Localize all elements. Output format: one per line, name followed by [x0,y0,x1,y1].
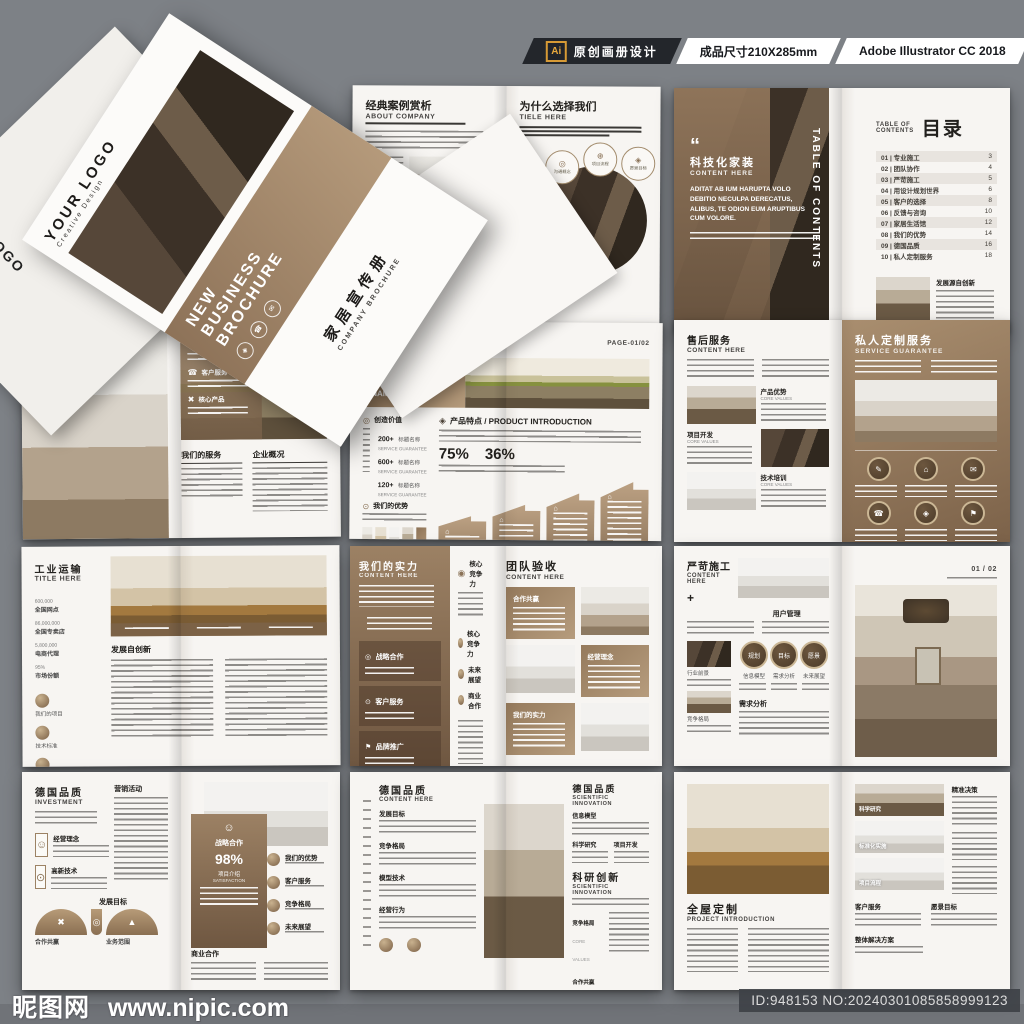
overlay-subtitle: CONTENT HERE [690,170,810,177]
text-lines [955,485,997,497]
left-col: 德国品质 CONTENT HERE 发展目标 竞争格局 模型技术 经营行为 [379,782,476,980]
person-icon: ☺ [197,822,261,834]
page-toc: TABLE OF CONTENTS 目录 01 | 专业施工3 02 | 团队协… [829,88,1010,332]
stair-hall-photo: 项目流程 [855,858,944,890]
dot-circle-icon: ⊙ [362,501,369,510]
section-head: 需求分析 [739,699,829,709]
text-lines [513,607,565,633]
kitchen-photo [581,703,650,751]
big-title: 科研创新 [572,869,649,884]
person-icon-box: ☺ [35,833,48,857]
pagination: 01 / 02 [855,558,997,581]
decision-col: 精准决策 [952,784,997,894]
text-lines [53,845,109,857]
interior-photo [687,472,756,510]
bigdot-icon: ◉ [458,568,466,579]
toc-heading: TABLE OF CONTENTS 目录 [876,114,997,141]
toc-item: 08 | 我们的优势14 [876,228,997,239]
row-label: 竞争格局 CORE VALUES [572,912,603,966]
circles-row: 规划 目标 愿景 [739,641,829,669]
watermark: 昵图网 www.nipic.com [12,988,289,1024]
section-subtitle: SCIENTIFIC INNOVATION [572,795,649,807]
intro-lines [855,360,997,374]
bottom-heads: 客户服务 愿景目标 [855,901,997,929]
text-lines [365,757,414,766]
page-showcase: 01 / 02 [842,546,1010,766]
strength-panel: 我们的实力 CONTENT HERE ◎ 战略合作 ⊙ 客户服务 ⚑ 品牌推广 [350,546,450,766]
section-heading: 严苛施工 CONTENT HERE + [687,558,738,605]
left-rail: 工业运输 TITLE HERE 600,000全国网点 86,000,000全国… [34,556,101,766]
side-item: 核心竞争力 [458,628,486,658]
bottom-lines [191,962,328,980]
text-lines [553,512,587,541]
wardrobe-photo: 科学研究 [855,784,944,816]
page-number: PAGE-01/02 [607,340,649,347]
coin-icon [36,758,50,767]
text-lines [359,585,434,607]
section-title: 德国品质 [572,782,649,795]
strength-box: ◎ 战略合作 [359,641,441,681]
plus-mark: + [687,591,738,605]
toc-en-label: TABLE OF CONTENTS [876,122,914,134]
mini-col: 项目开发 [614,840,649,863]
tick-rail [363,800,371,950]
section-head: 发展自创新 [111,643,327,655]
team-bubble: 合作共赢 [506,587,575,639]
text-lines [125,627,169,632]
text-lines [365,712,414,721]
house-icon: ⌂ [924,465,929,474]
text-lines [739,683,766,693]
interior-photo [687,691,731,713]
overlay-text-block: “ 科技化家装 CONTENT HERE ADITAT AB IUM HARUP… [690,140,810,241]
stock-preview-canvas: { "banner":{"ai_badge":"Ai","label_desig… [0,0,1024,1024]
page-innovation: 德国品质 CONTENT HERE 发展目标 竞争格局 模型技术 经营行为 德国… [350,772,662,990]
section-subtitle: SERVICE GUARANTEE [855,348,997,355]
col-a: 德国品质 INVESTMENT ☺ 经营理念 ⊙ 高新技术 [35,784,104,889]
spec-design-label: 原创画册设计 [574,43,658,60]
text-lines [762,621,829,635]
thumb: 新能源 [375,527,386,541]
text-lines [936,290,994,324]
thumb-stack: 科学研究 标准化实施 项目流程 [855,784,944,894]
spec-size-tag: 成品尺寸210X285mm [676,38,841,64]
goal-circle: 目标 [770,641,798,669]
text-lines [365,667,414,676]
circles-col: 规划 目标 愿景 信息模型 需求分析 未来展望 需求分析 [739,641,829,737]
target-icon: ◎ [365,654,371,661]
icon-list: 我们的项目 技术标准 产品优势 [35,693,101,766]
timeline-dot: ☎ [867,501,891,525]
text-lines [855,913,921,929]
house-bar: ⌂ [492,503,541,541]
interior-photo [687,386,756,424]
advantage-text: 未来展望 [285,921,328,936]
side-title: 精准决策 [952,784,997,794]
living-room-photo [581,587,650,635]
spread-contents: “ 科技化家装 CONTENT HERE ADITAT AB IUM HARUP… [674,88,1010,332]
text-lines [362,513,426,523]
plan-circle: 规划 [740,641,768,669]
process-layout: 科学研究 标准化实施 项目流程 精准决策 [855,784,997,894]
solution-block: 整体解决方案 [855,934,923,956]
head-row: 严苛施工 CONTENT HERE + [687,558,829,605]
sofa-photo [738,558,829,598]
circle-lines [739,683,829,693]
page-strength: 我们的实力 CONTENT HERE ◎ 战略合作 ⊙ 客户服务 ⚑ 品牌推广 … [350,546,493,766]
grid-text-cell: 技术培训CORE VALUES [761,472,830,510]
square-item: ☺ 经营理念 [35,833,104,857]
stat: 120+ 标题名称SERVICE GUARANTEE [378,474,427,497]
body-columns [111,658,327,737]
industry-layout: 工业运输 TITLE HERE 600,000全国网点 86,000,000全国… [34,555,327,767]
thumbs-row: 生物科技 新能源 房地产 信息科技 医疗 [362,527,426,541]
timeline-dot: ⚑ [961,501,985,525]
mail-icon: ✉ [260,297,284,321]
panel-title: 我们的实力 [359,558,441,573]
strength-box: ⚑ 品牌推广 [359,731,441,766]
text-lines [367,617,432,633]
page-whole-house: 全屋定制 PROJECT INTRODUCTION [674,772,842,990]
text-lines [739,711,829,737]
text-lines [690,232,820,241]
spec-design-tag: Ai 原创画册设计 [522,38,682,64]
side-item: 未来展望 [458,664,486,684]
phone-icon: ☎ [874,509,884,518]
text-lines [499,524,533,541]
text-lines [607,501,641,541]
text-lines [771,683,798,693]
advantage-item: 我们的优势 [267,852,328,867]
plus-icon: ⊕ [597,152,604,160]
interior-photo [761,429,830,467]
section-subtitle: CONTENT HERE [687,347,829,354]
inv-columns: 德国品质 INVESTMENT ☺ 经营理念 ⊙ 高新技术 营销活动 [35,784,168,889]
image-id-badge: ID:948153 NO:20240301085858999123 [739,989,1020,1012]
text-lines [285,885,324,890]
advantage-item: 客户服务 [267,875,328,890]
feature-badge: ◈愿景目标 [621,147,655,181]
mosaic-grid: 产品优势CORE VALUES 项目开发CORE VALUES 技术培训CORE… [687,386,829,510]
thumb-photo [362,527,373,541]
page-process: 科学研究 标准化实施 项目流程 精准决策 客户服务 愿景目标 整体解决方案 [842,772,1010,990]
intro-lines [687,359,829,379]
toc-item: 05 | 客户的选择8 [876,195,997,206]
thumb-photo [376,527,387,541]
pencil-icon: ✎ [875,465,882,474]
feature-title: 发展源自创新 [936,277,997,287]
section-title: 售后服务 [687,332,829,347]
page-team: 团队验收 CONTENT HERE 合作共赢 经营理念 我们的实力 [493,546,662,766]
page-investment: 德国品质 INVESTMENT ☺ 经营理念 ⊙ 高新技术 营销活动 发展目标 … [22,772,181,990]
team-grid: 合作共赢 经营理念 我们的实力 [506,587,649,755]
text-lines [748,928,829,972]
text-lines [687,446,752,466]
spread-after-sales: 售后服务 CONTENT HERE 产品优势CORE VALUES 项目开发CO… [674,320,1010,542]
wall-art-shape [915,647,942,685]
stat: 95%市场份额 [35,664,101,679]
text-lines [225,658,327,737]
watermark-site-url: www.nipic.com [108,994,289,1022]
coin-icon [35,726,49,740]
house-bar: ⌂ [600,480,649,541]
toc-item: 04 | 用设计规划世界6 [876,184,997,195]
divider [519,126,641,129]
body-columns [687,928,829,972]
dot-circle-icon: ⊙ [365,699,371,706]
bottom-rows: 竞争格局 CORE VALUES 合作共赢 OUR MISSION 竞争格局 C… [572,912,649,990]
section-title: 团队验收 [506,558,649,574]
toc-item: 01 | 专业施工3 [876,151,997,162]
coin-icon [379,938,393,952]
house-bar: ⌂ [438,515,487,542]
inn-layout: 德国品质 CONTENT HERE 发展目标 竞争格局 模型技术 经营行为 德国… [363,782,649,980]
timeline-lines [855,529,997,541]
text-lines [687,928,738,972]
advantage-text: 客户服务 [285,875,328,890]
coin-icon [458,669,465,679]
spec-banner: Ai 原创画册设计 成品尺寸210X285mm Adobe Illustrato… [522,38,1024,64]
toc-item: 03 | 严苛施工5 [876,173,997,184]
text-lines [572,898,649,908]
section-title: 德国品质 [379,782,476,797]
thumb-photo [402,527,413,541]
square-text: 高新技术 [51,865,107,889]
page-after-sales: 售后服务 CONTENT HERE 产品优势CORE VALUES 项目开发CO… [674,320,842,542]
advantage-text: 我们的优势 [285,852,328,867]
arc-row: ✖合作共赢 ◎ ▲业务范围 [35,909,168,946]
chandelier-living-room-photo [855,585,997,757]
page-strategic: ☺ 战略合作 98% 项目介绍 SATISFACTION 我们的优势 客户服务 … [181,772,340,990]
hallway-photo [876,277,930,321]
text-lines [609,912,649,952]
chandelier-shape [903,599,948,623]
section-title: 工业运输 [34,560,100,575]
thumb: 房地产 [389,527,400,541]
text-lines [379,820,476,836]
timeline-dot: ✎ [867,457,891,481]
text-lines [458,592,484,618]
timeline-lines [855,485,997,497]
toc-item: 09 | 德国品质16 [876,239,997,250]
big-subtitle: SCIENTIFIC INNOVATION [572,884,649,896]
mid-row: 行业前景 竞争格局 规划 目标 愿景 信息模型 需求分析 未来展望 [687,641,829,737]
timeline-dot: ⌂ [914,457,938,481]
panel-subtitle: CONTENT HERE [359,573,441,579]
text-lines [614,851,649,863]
team-bubble: 经营理念 [581,645,650,697]
toc-item: 06 | 反馈与咨询10 [876,206,997,217]
section-title: 为什么选择我们 [519,98,647,115]
col-b: 营销活动 [114,784,168,889]
photo-caption-strip [111,622,327,636]
timeline-dot: ◈ [914,501,938,525]
coins-row [379,938,476,952]
head-block: 愿景目标 [931,901,997,929]
side-item: ◉核心竞争力 [458,558,486,588]
stat: 600,000全国网点 [35,598,101,613]
sofa-stairs-photo [855,380,997,442]
tools-semicircle: ✖ [35,909,87,935]
dining-room-photo [484,804,564,958]
section-subtitle: TIELE HERE [519,114,647,122]
page-construction: 严苛施工 CONTENT HERE + 用户管理 行业前景 竞争格局 规划 [674,546,842,766]
text-lines [761,403,826,423]
section-subtitle: CONTENT HERE [506,574,649,581]
feature-badge: ⊕项目流程 [583,142,617,176]
text-lines [114,797,168,883]
text-lines [269,626,313,631]
text-lines [802,683,829,693]
percent-value: 98% [197,851,261,867]
team-bubble: 我们的实力 [506,703,575,755]
stair-hall-photo: 标准化实施 [855,821,944,853]
side-col: 行业前景 竞争格局 [687,641,731,737]
square-item: ⊙ 高新技术 [35,865,104,889]
text-lines [687,621,754,635]
square-text: 经营理念 [53,833,109,857]
vision-circle: 愿景 [800,641,828,669]
arc-item: ✖合作共赢 [35,909,87,946]
row-labels: 竞争格局 CORE VALUES 合作共赢 OUR MISSION 竞争格局 C… [572,912,603,990]
thumb: 信息科技 [402,527,413,541]
text-lines [931,913,997,929]
section-subtitle: TITLE HERE [35,575,101,582]
arc-item: ▲业务范围 [106,909,158,946]
house-bars: ⌂ ⌂ ⌂ ⌂ [438,479,649,542]
text-lines [931,360,997,374]
divider [519,130,641,133]
icon-item: 产品优势 [36,757,102,766]
two-col: 科学研究 项目开发 [572,840,649,863]
timeline-dot: ✉ [961,457,985,481]
text-lines [181,467,243,498]
timeline-row: ☎ ◈ ⚑ [855,501,997,525]
strength-box: ⊙ 客户服务 [359,686,441,726]
bedroom-banner [110,555,326,636]
satisfaction-panel: ☺ 战略合作 98% 项目介绍 SATISFACTION [191,814,267,948]
text-lines [687,359,754,379]
lines-row [687,621,829,635]
text-lines [588,665,640,691]
quote-icon: “ [690,140,810,152]
section-head: ⊙我们的优势 [362,501,426,511]
toc-list: 01 | 专业施工3 02 | 团队协作4 03 | 严苛施工5 04 | 用设… [876,151,997,261]
pin-icon-box: ⊙ [35,865,46,889]
text-lines [687,679,731,687]
stats-list: 600,000全国网点 86,000,000全国专卖店 5,800,000电商代… [35,598,101,679]
diamond-icon: ◈ [923,509,929,518]
thumb-photo [389,527,400,541]
coin-icon [267,899,280,912]
diamond-icon: ◈ [233,339,257,363]
bedroom-photo [687,784,829,894]
icon-item: 我们的项目 [35,693,101,717]
stat: 86,000,000全国专卖店 [35,620,101,635]
text-lines [947,577,997,581]
coin-icon [267,876,280,889]
text-lines [200,887,258,905]
overlay-body: ADITAT AB IUM HARUPTA VOLO DEBITIO NECUL… [690,185,810,224]
text-lines [952,832,997,860]
cover-stack: YOUR LOGO 全国统一服务热线 400-123-4567 YOUR LOG… [0,10,530,470]
flag-icon: ⚑ [970,509,977,518]
thumb: 医疗 [416,527,427,541]
spine-label: TABLE OF CONTENTS [810,128,821,269]
advantage-text: 竞争格局 [285,898,328,913]
icon-item: 技术标准 [35,725,101,749]
spread-industry: 工业运输 TITLE HERE 600,000全国网点 86,000,000全国… [21,545,340,767]
mini-col: 科学研究 [572,840,607,863]
triangle-semicircle: ▲ [106,909,158,935]
page-industry: 工业运输 TITLE HERE 600,000全国网点 86,000,000全国… [21,545,340,767]
text-lines [855,360,921,374]
text-lines [285,931,324,936]
text-lines [855,485,897,497]
text-lines [905,485,947,497]
head-block: 客户服务 [855,901,921,929]
section-subtitle: PROJECT INTRODUCTION [687,917,829,923]
spread-innovation: 德国品质 CONTENT HERE 发展目标 竞争格局 模型技术 经营行为 德国… [350,772,662,990]
text-lines [761,489,826,509]
target-semicircle: ◎ [91,909,102,935]
text-lines [955,529,997,541]
coin-icon [267,853,280,866]
strength-side: ◉核心竞争力 核心竞争力 未来展望 商业合作 [450,546,494,766]
diamond-icon: ◈ [635,156,641,164]
advantage-item: 未来展望 [267,921,328,936]
page-tech-home: “ 科技化家装 CONTENT HERE ADITAT AB IUM HARUP… [674,88,829,332]
text-lines [285,862,324,867]
spread-construction: 严苛施工 CONTENT HERE + 用户管理 行业前景 竞争格局 规划 [674,546,1010,766]
flag-icon: ⚑ [365,744,371,751]
column-title: 营销活动 [114,784,168,794]
text-lines [952,796,997,826]
coin-icon [267,922,280,935]
text-lines [905,529,947,541]
circle-labels: 信息模型 需求分析 未来展望 [739,672,829,680]
toc-feature-text: 发展源自创新 [936,277,997,324]
text-lines [952,866,997,894]
family-photo [506,645,575,693]
coin-icon [407,938,421,952]
advantage-list: 我们的优势 客户服务 竞争格局 未来展望 [267,852,328,936]
text-lines [35,811,97,825]
text-lines [197,627,241,632]
text-lines [458,720,484,764]
toc-feature: 发展源自创新 [876,277,997,324]
target-icon: ◎ [559,160,566,168]
coin-icon [35,694,49,708]
thumb: 生物科技 [362,527,373,541]
section-subtitle: INVESTMENT [35,799,104,806]
text-lines [51,877,107,889]
coin-icon [458,695,465,705]
text-lines [264,962,329,980]
spread-whole-house: 全屋定制 PROJECT INTRODUCTION 科学研究 标准化实施 项目流… [674,772,1010,990]
text-lines [253,467,328,512]
side-item: 商业合作 [458,690,486,710]
advantage-item: 竞争格局 [267,898,328,913]
timeline-row: ✎ ⌂ ✉ [855,450,997,481]
toc-item: 10 | 私人定制服务18 [876,250,997,261]
row-label: 合作共赢 OUR MISSION [572,971,603,990]
text-lines [379,916,476,932]
text-lines [379,852,476,868]
section-head: 发展目标 [99,897,168,907]
text-lines [445,536,479,542]
text-lines [285,908,324,913]
